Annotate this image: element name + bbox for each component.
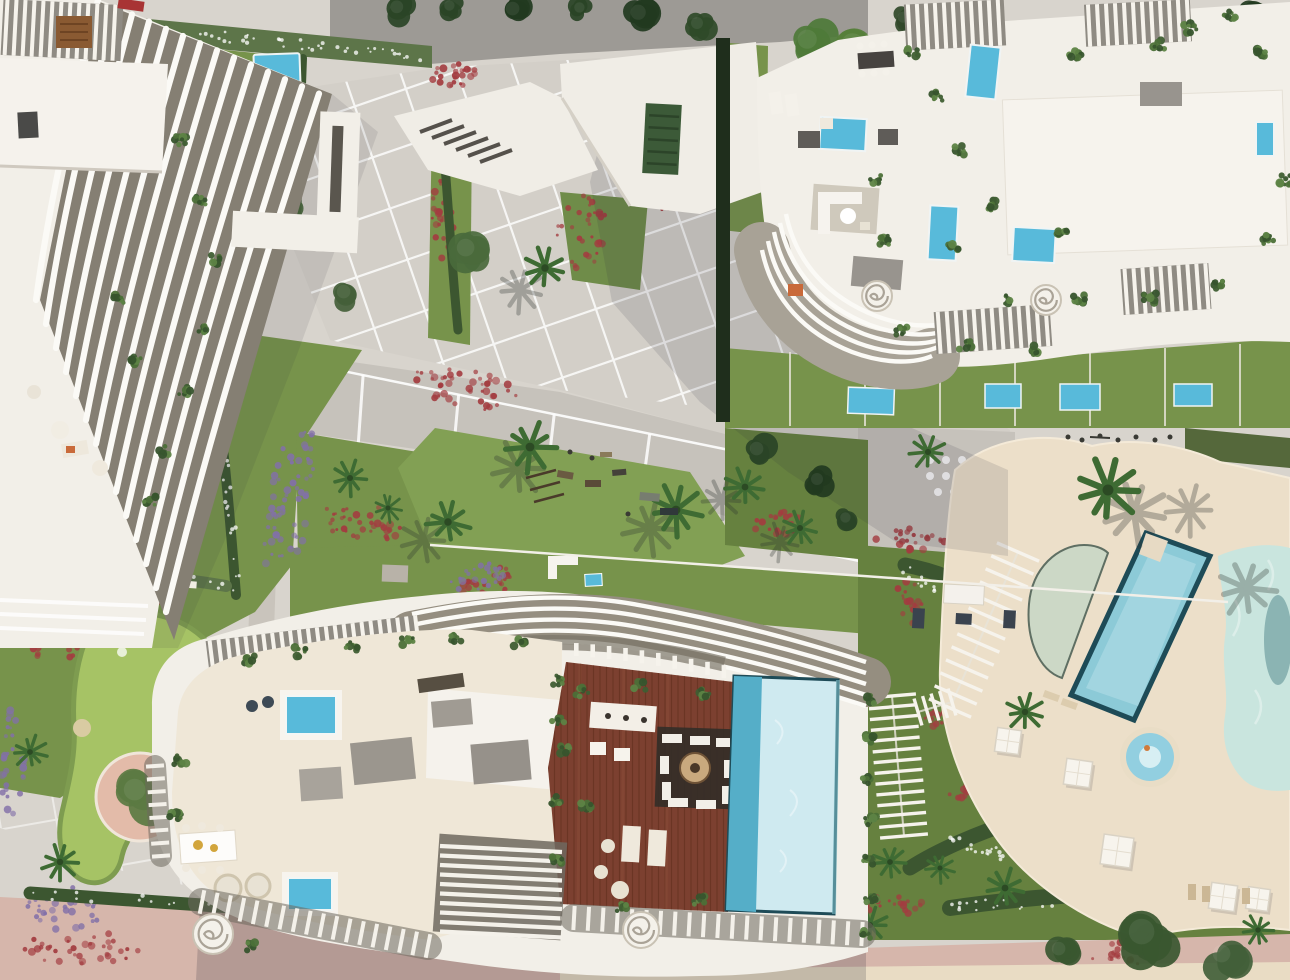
render-canvas [0,0,1290,980]
cross-walkway [231,211,359,254]
belt-daybed [382,565,409,583]
tl-roof-box [17,111,38,138]
tall-hedge-wall [716,38,730,422]
kids-pool-foam [1139,746,1161,768]
swimmer [1144,745,1150,751]
bc-balustrade-left [146,765,170,856]
building-bottom [146,591,880,980]
tr-pool-step [820,118,833,129]
belt-pergola-table [944,584,985,605]
building-top-right [716,0,1290,428]
aerial-render [0,0,1290,980]
golf-bunker [73,719,91,737]
belt-sofa-arm [548,565,557,579]
bc-slat-grid [433,834,568,941]
belt-sofa [548,556,578,565]
golf-hole [117,647,127,657]
bc-pool [726,676,838,914]
belt-spa [585,574,603,587]
